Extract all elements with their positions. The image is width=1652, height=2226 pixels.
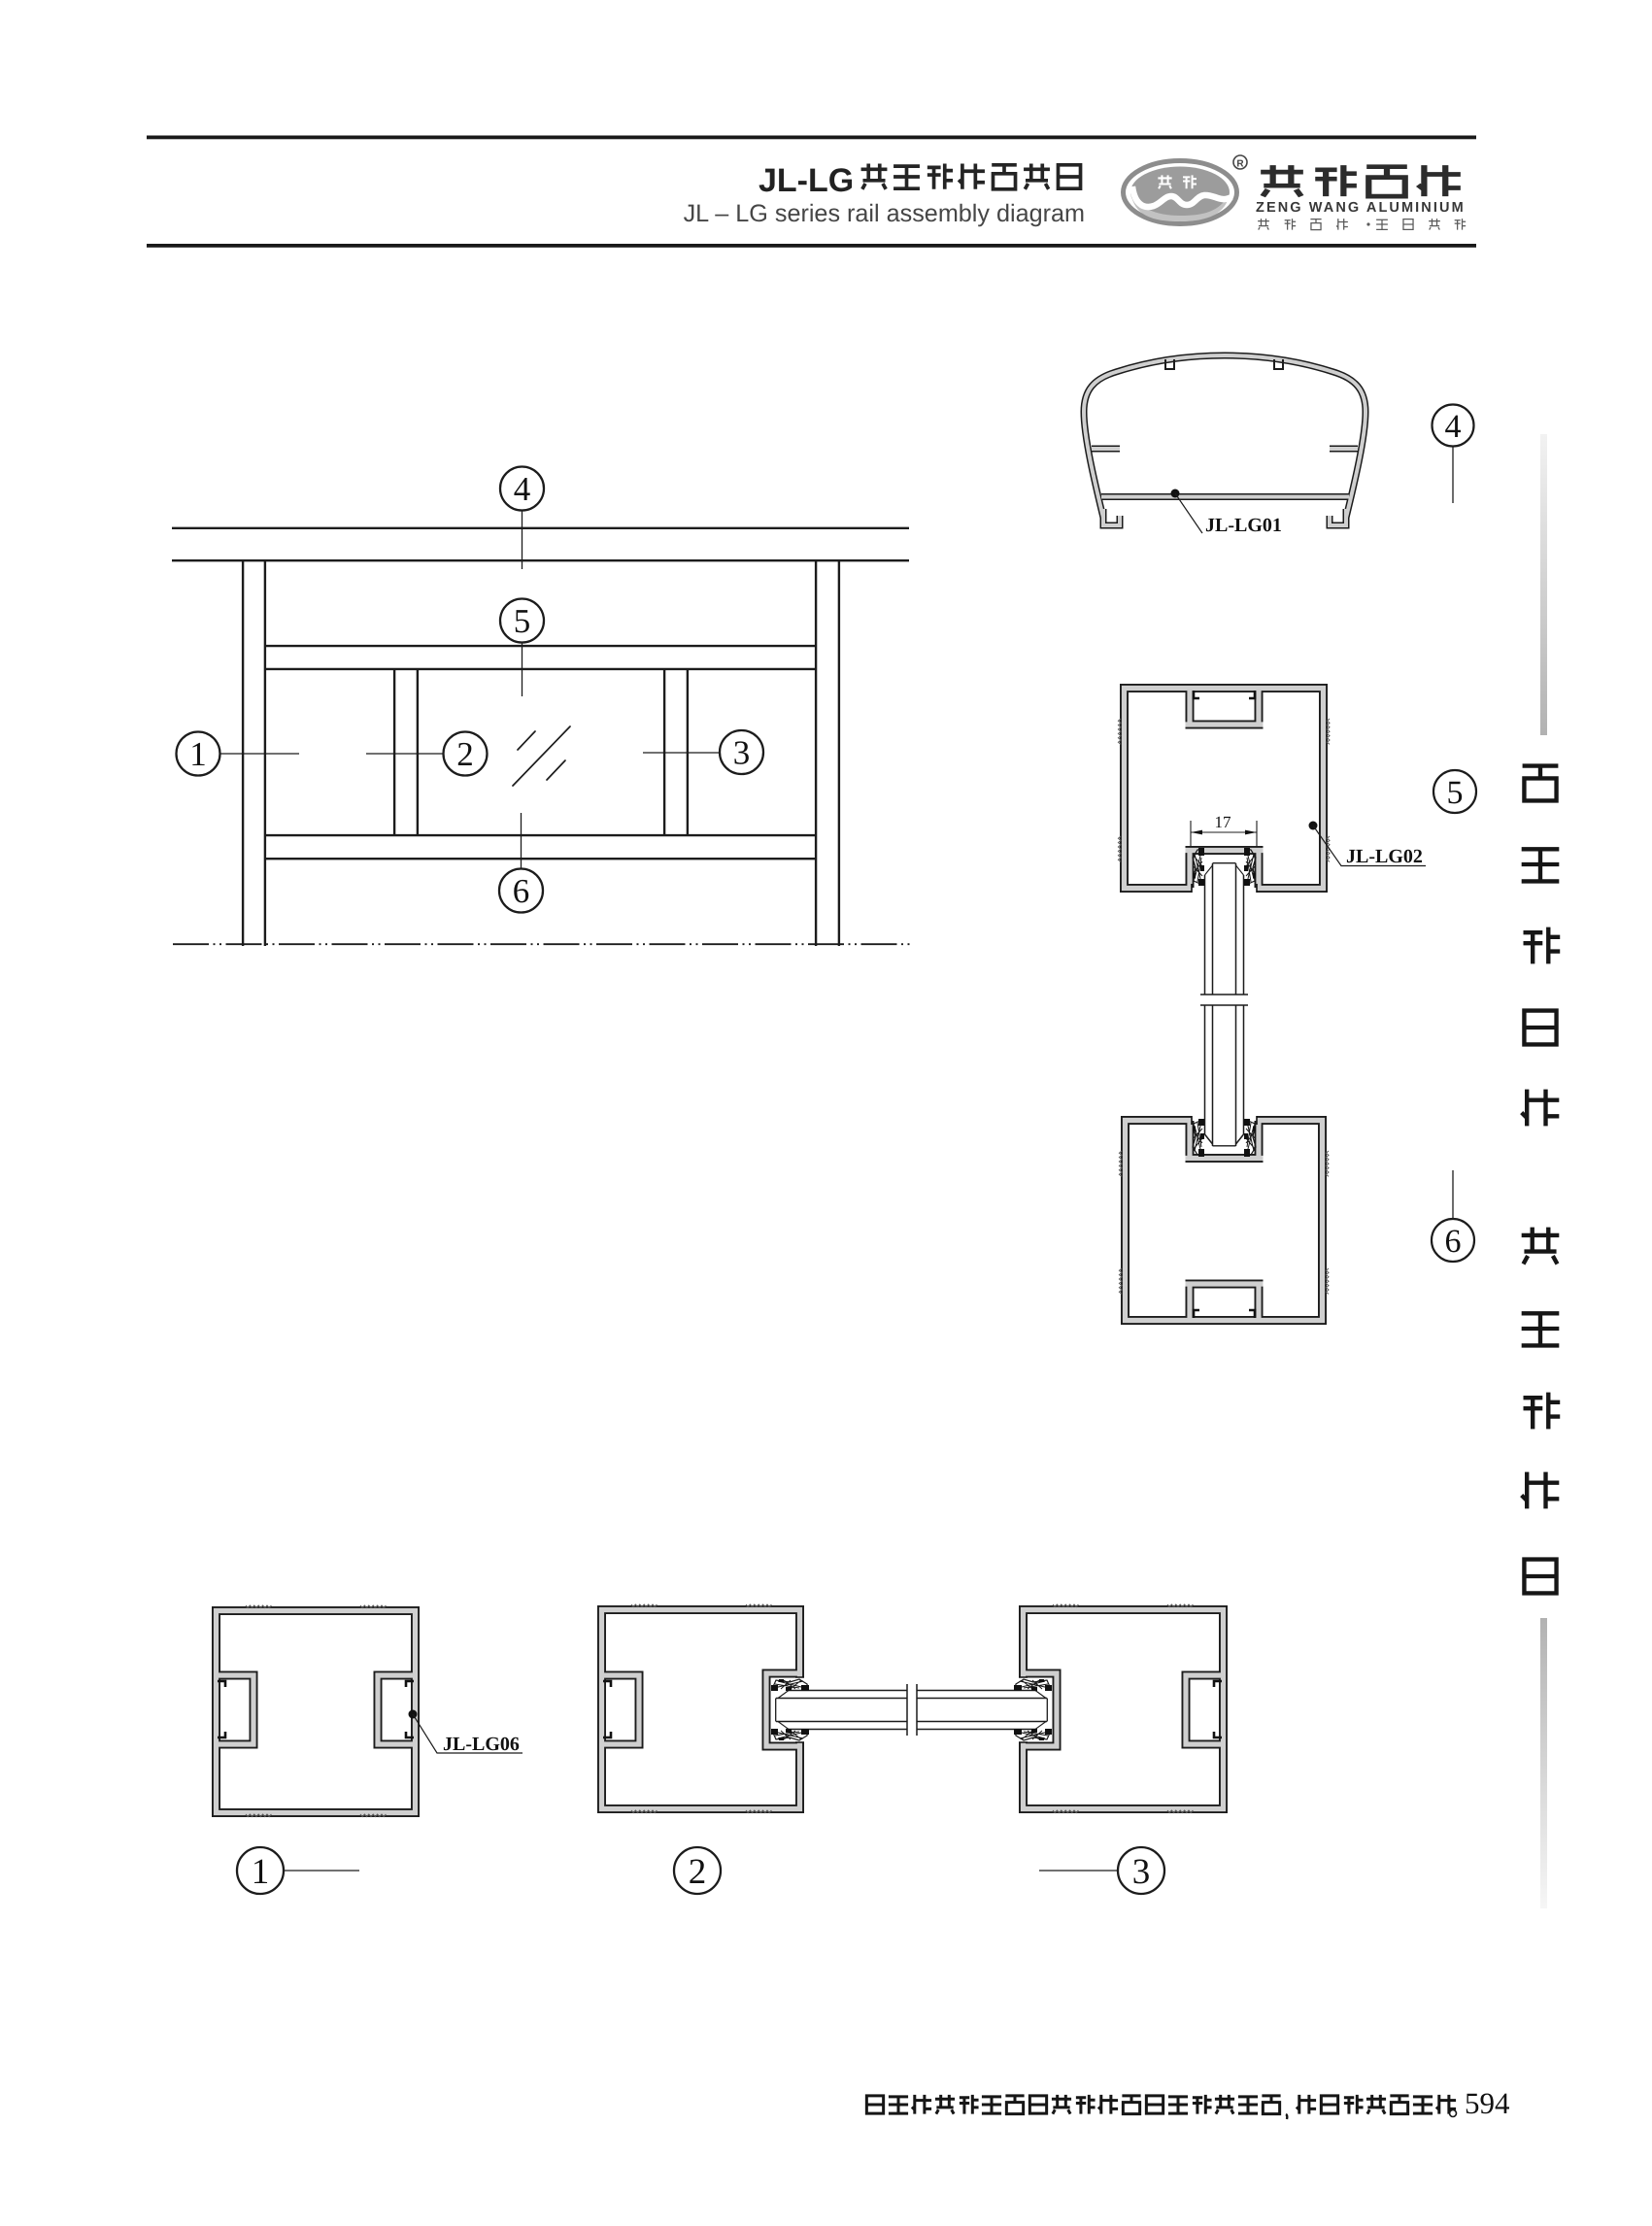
svg-text:6: 6: [513, 872, 530, 910]
svg-text:5: 5: [514, 602, 531, 640]
svg-text:17: 17: [1215, 813, 1232, 831]
svg-text:JL-LG02: JL-LG02: [1346, 846, 1423, 867]
svg-text:4: 4: [1445, 409, 1462, 445]
svg-text:2: 2: [456, 735, 474, 773]
svg-text:4: 4: [514, 470, 531, 508]
svg-text:594: 594: [1465, 2086, 1510, 2120]
svg-text:1: 1: [252, 1852, 270, 1892]
svg-text:JL-LG01: JL-LG01: [1205, 515, 1282, 536]
svg-text:3: 3: [1132, 1852, 1151, 1892]
svg-text:JL – LG series rail assembly d: JL – LG series rail assembly diagram: [684, 200, 1085, 227]
svg-text:R: R: [1236, 159, 1244, 170]
svg-text:2: 2: [689, 1852, 707, 1892]
svg-text:1: 1: [189, 735, 207, 773]
svg-text:5: 5: [1447, 775, 1464, 811]
svg-text:ZENG WANG ALUMINIUM: ZENG WANG ALUMINIUM: [1256, 200, 1466, 216]
svg-text:6: 6: [1445, 1224, 1462, 1260]
svg-text:JL-LG06: JL-LG06: [443, 1734, 520, 1755]
svg-text:3: 3: [733, 734, 751, 772]
svg-text:JL-LG: JL-LG: [759, 162, 854, 199]
